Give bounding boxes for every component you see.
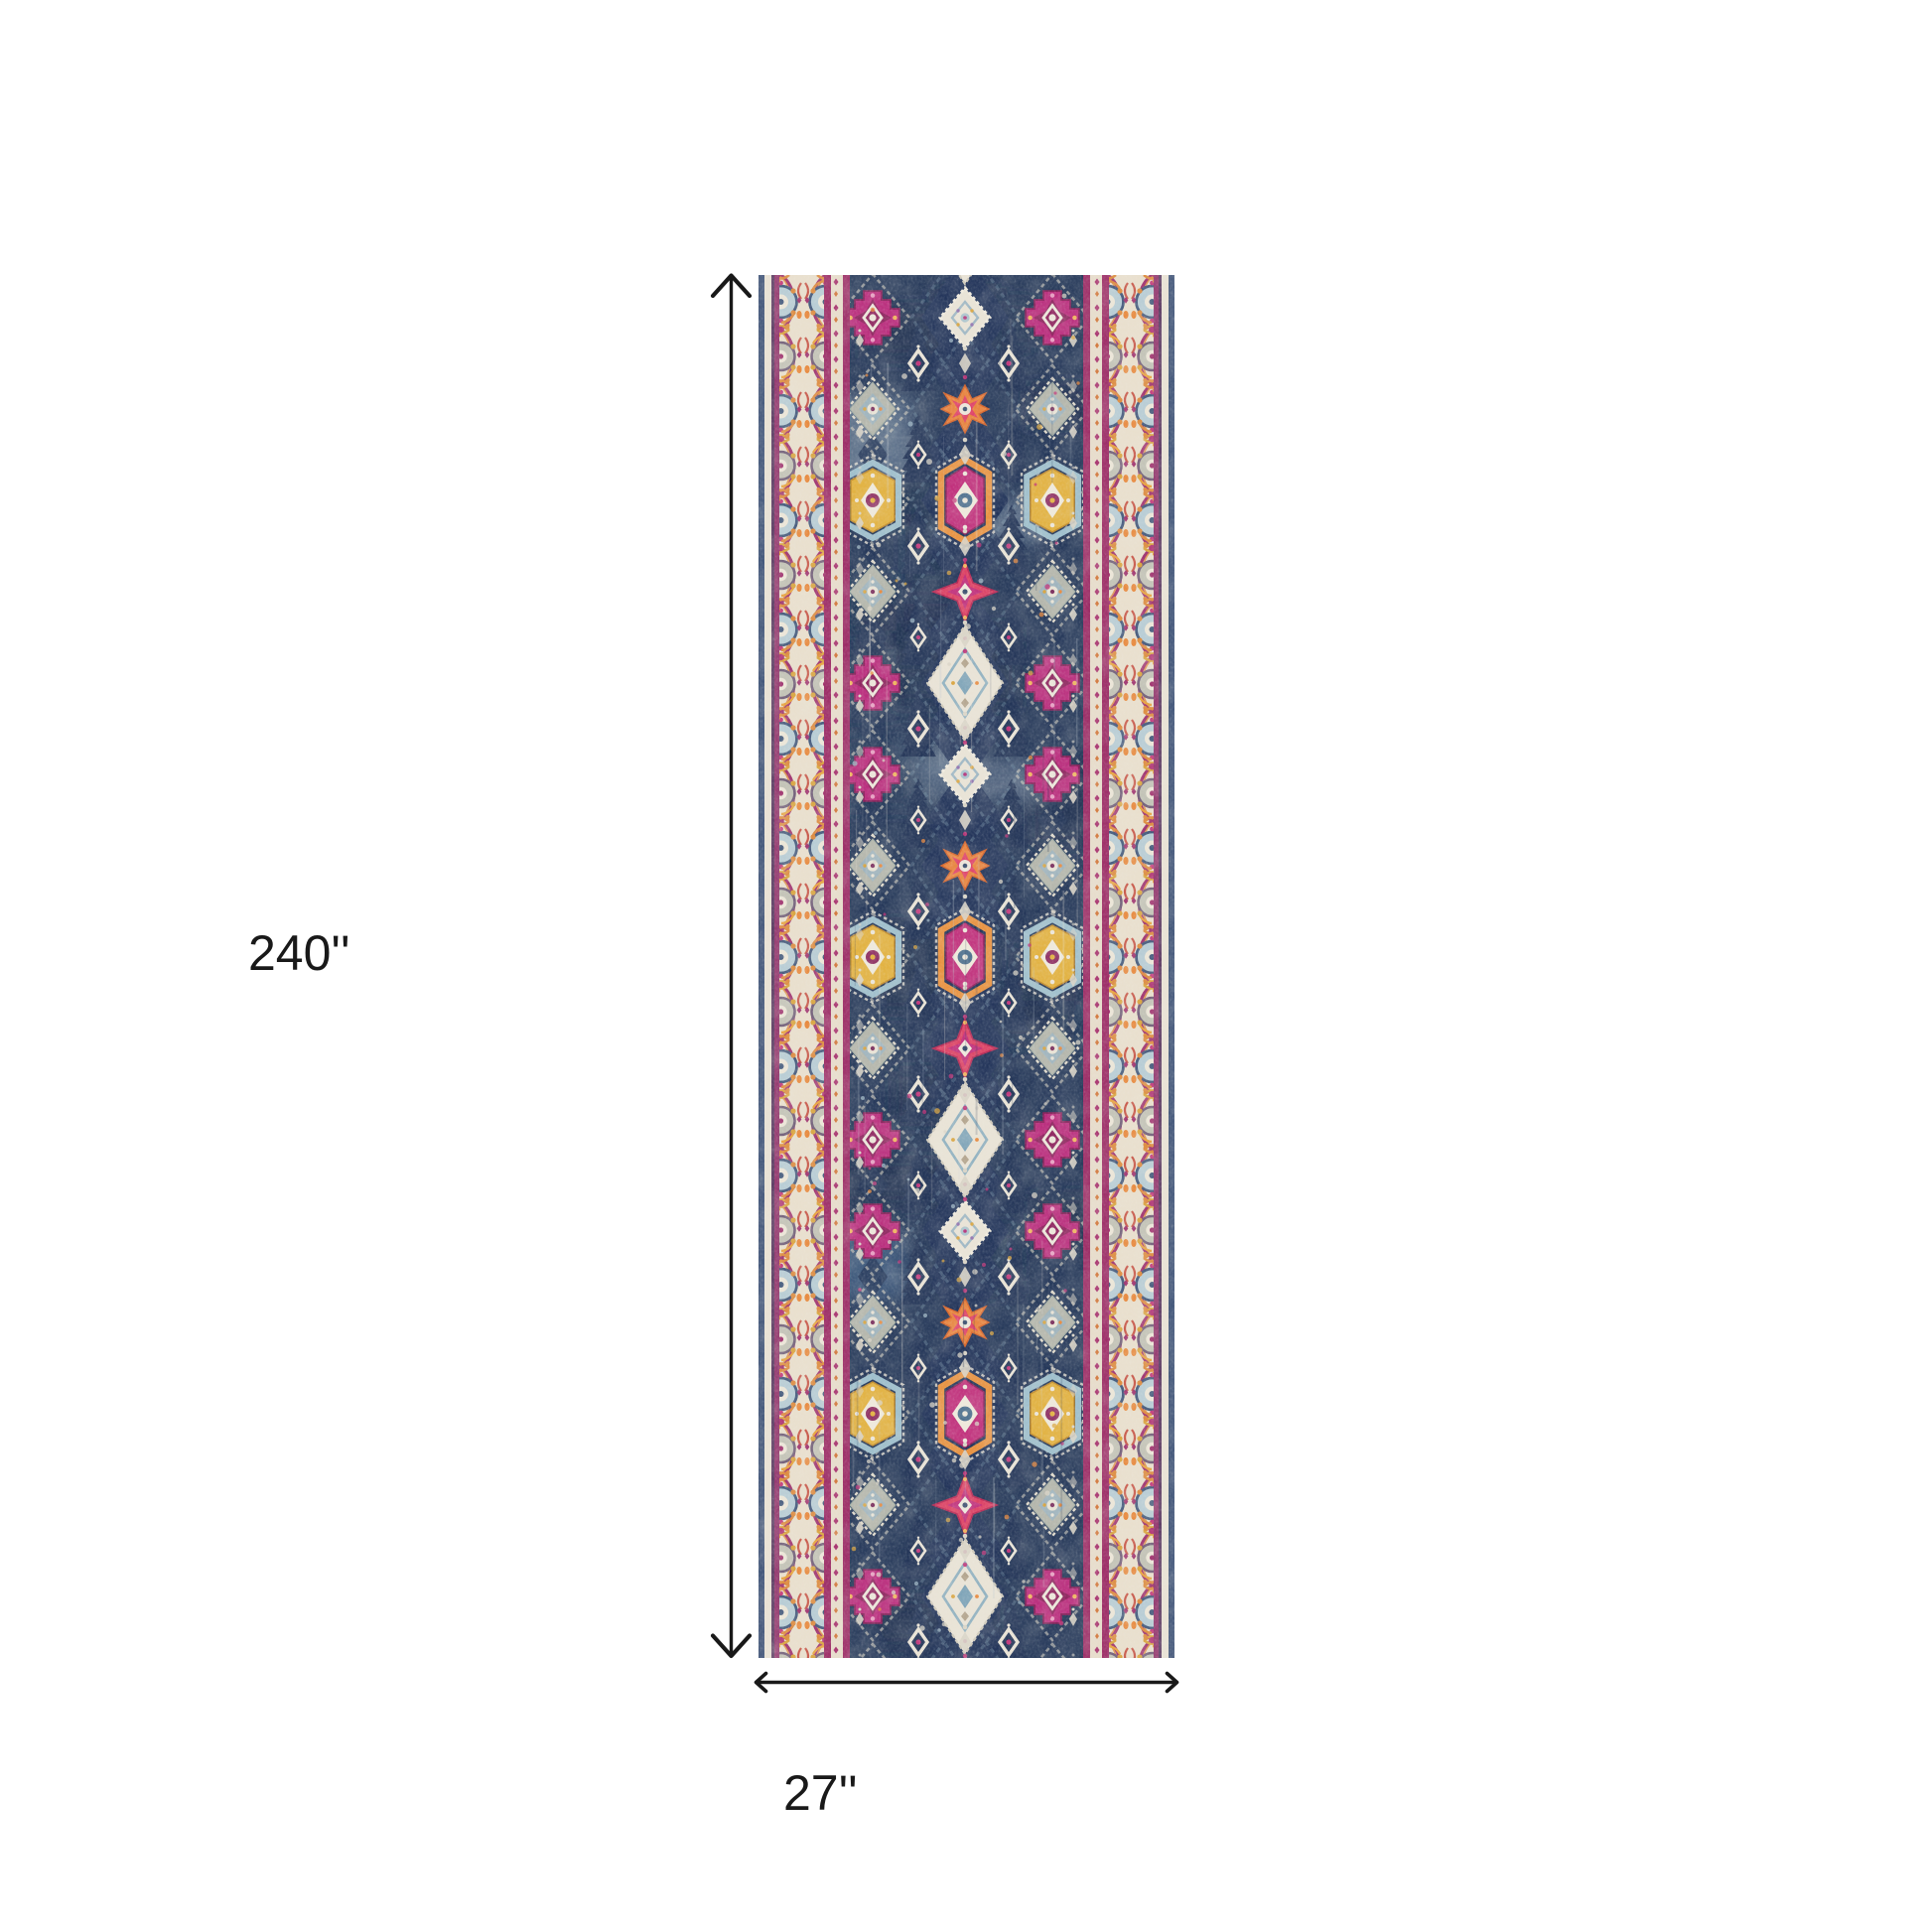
svg-text:27'': 27'' xyxy=(783,1765,858,1821)
svg-text:240'': 240'' xyxy=(248,925,350,981)
